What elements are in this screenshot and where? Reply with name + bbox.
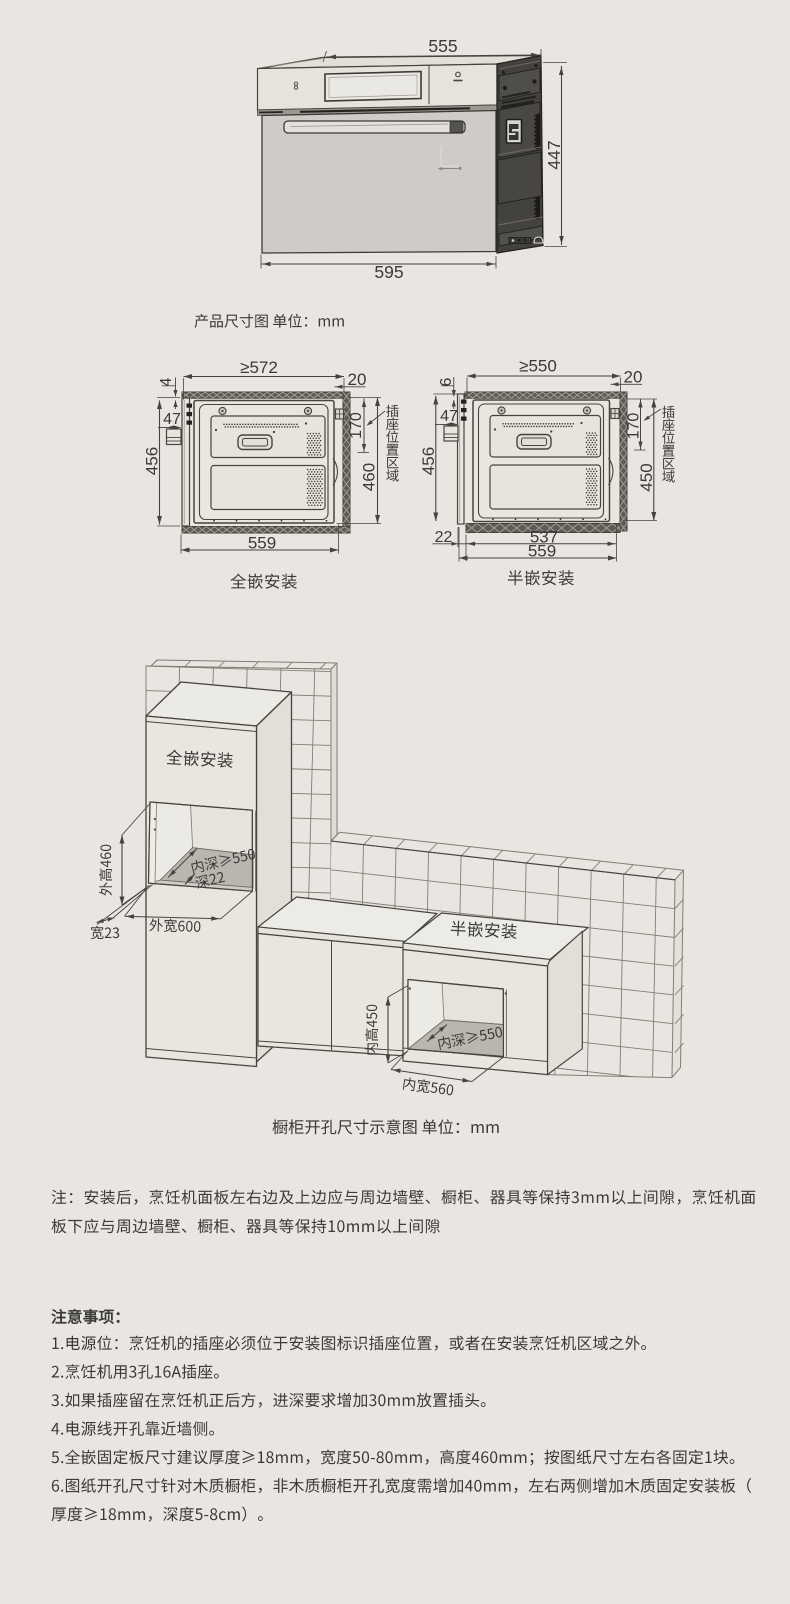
svg-text:456: 456: [143, 447, 162, 475]
svg-text:6: 6: [438, 377, 455, 386]
svg-text:20: 20: [624, 368, 643, 387]
svg-text:460: 460: [360, 463, 379, 491]
svg-text:559: 559: [528, 542, 556, 561]
svg-text:4: 4: [158, 377, 175, 386]
svg-text:20: 20: [348, 370, 367, 389]
svg-text:595: 595: [374, 262, 403, 282]
svg-text:450: 450: [637, 463, 656, 491]
svg-text:≥550: ≥550: [519, 357, 557, 376]
svg-text:447: 447: [544, 140, 564, 169]
svg-text:559: 559: [248, 534, 276, 553]
svg-text:≥572: ≥572: [240, 358, 278, 377]
svg-text:170: 170: [626, 413, 643, 440]
svg-text:47: 47: [163, 411, 181, 428]
svg-text:555: 555: [428, 36, 457, 56]
svg-text:456: 456: [419, 447, 438, 475]
svg-text:170: 170: [348, 412, 365, 439]
svg-text:47: 47: [440, 408, 458, 425]
